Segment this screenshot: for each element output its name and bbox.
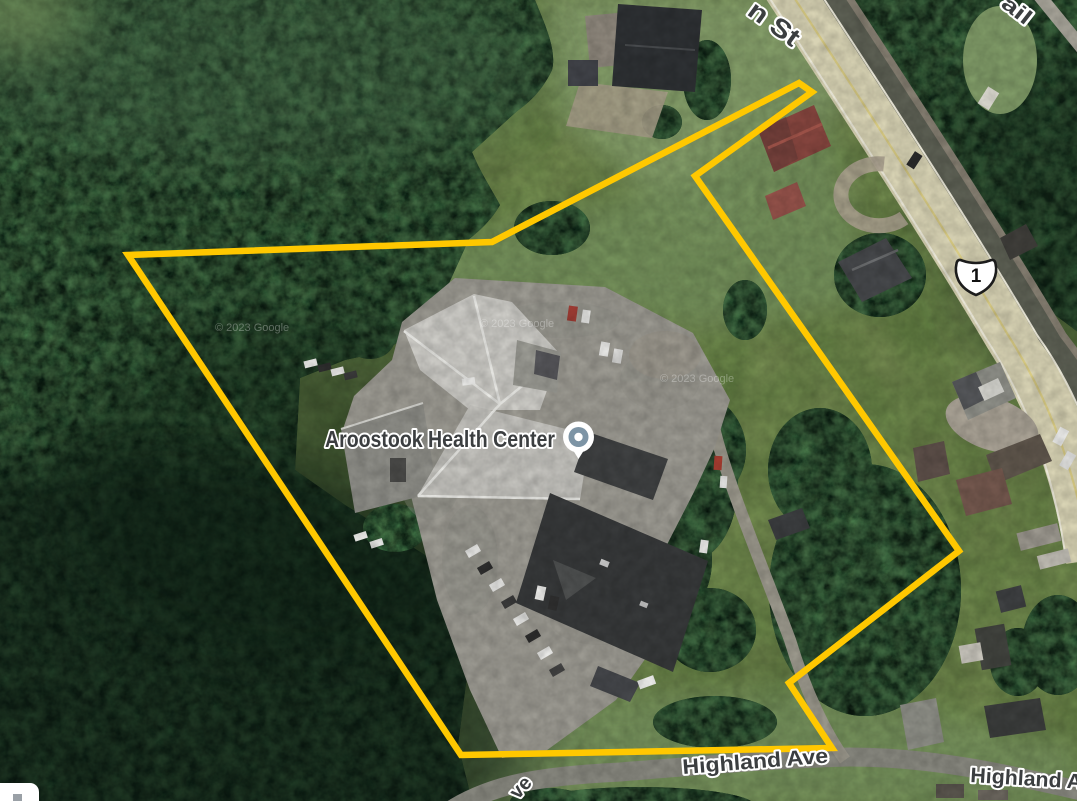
- svg-text:1: 1: [971, 266, 982, 287]
- svg-text:Aroostook Health Center: Aroostook Health Center: [325, 426, 555, 452]
- svg-text:© 2023 Google: © 2023 Google: [480, 318, 554, 330]
- svg-text:© 2023 Google: © 2023 Google: [660, 373, 734, 385]
- svg-text:© 2023 Google: © 2023 Google: [215, 322, 289, 334]
